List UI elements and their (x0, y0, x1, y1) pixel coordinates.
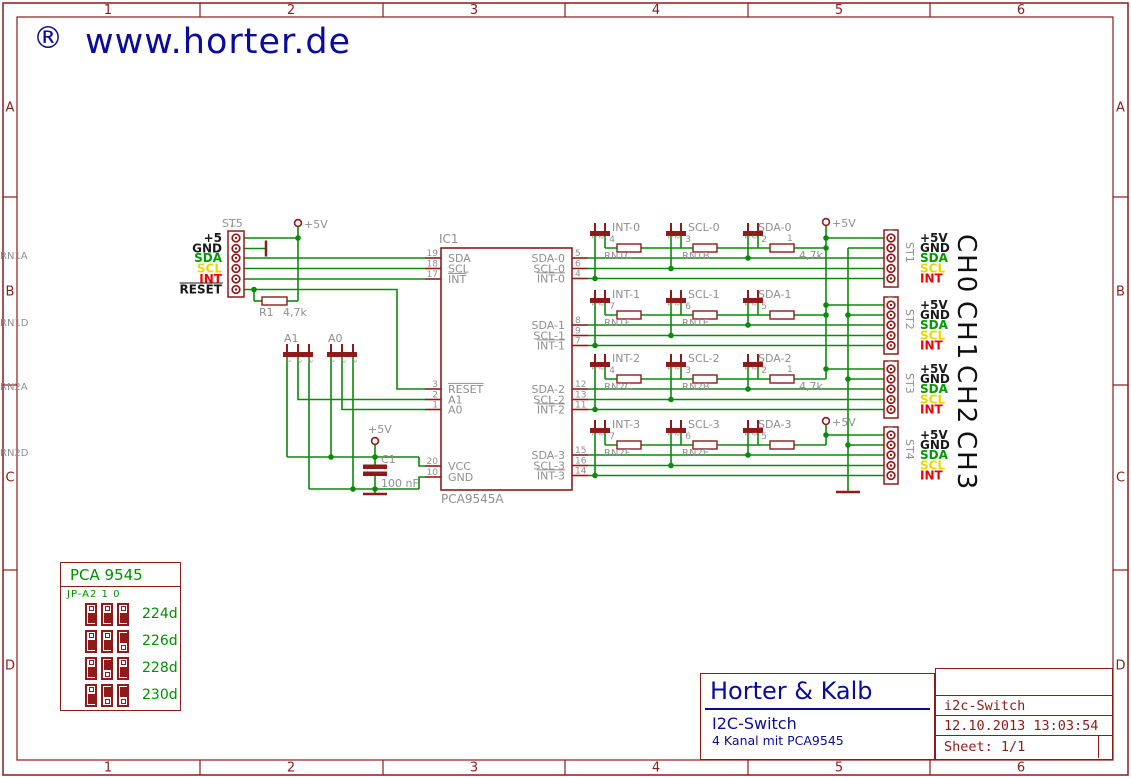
plus5v-label: +5V (368, 423, 392, 436)
grid-row-label: C (5, 471, 14, 486)
jumper-pin-number: 2 (750, 432, 758, 436)
jumper-block-up (117, 630, 129, 653)
st5-pin1-marker: 1 (229, 224, 237, 228)
jumper-open-pin (121, 645, 126, 650)
jumper-pin-number: 2 (597, 302, 605, 306)
rn-pin-number: 4 (609, 366, 615, 376)
ic-pin-number: 2 (432, 391, 438, 401)
title-block-company-box: Horter & Kalb I2C-Switch 4 Kanal mit PCA… (700, 673, 935, 760)
net-label: INT-2 (612, 352, 640, 365)
ic1-designator: IC1 (439, 232, 459, 246)
jumper-block-down (101, 630, 113, 653)
junction-dot (668, 463, 674, 469)
c1-plate (363, 472, 387, 477)
rn-pin-number: 2 (761, 235, 767, 245)
rn-pin-number: 4 (609, 235, 615, 245)
jumper-pin-number: 1 (743, 302, 751, 306)
rn-pin-number: 6 (685, 432, 691, 442)
ic-pin-number: 18 (427, 260, 439, 270)
jumper-open-pin (121, 699, 126, 704)
connector-pad-center (235, 278, 237, 280)
ic-pin-number: 4 (575, 270, 581, 280)
jumper-pin-number: 3 (306, 359, 314, 363)
jumper-pin-number: 1 (666, 366, 674, 370)
grid-column-label: 4 (652, 761, 660, 776)
address-value: 226d (142, 633, 178, 649)
net-label: SDA-0 (758, 221, 792, 234)
ic-pin-number: 8 (575, 316, 581, 326)
ic-pin-number: 14 (575, 467, 587, 477)
address-table-row: 226d (85, 629, 180, 653)
document-subtitle: 4 Kanal mit PCA9545 (701, 732, 934, 748)
rn-resistor-RN2D (770, 441, 794, 449)
st-designator: ST1 (903, 242, 916, 263)
title-block-empty-cell (936, 669, 1112, 696)
grid-row-label: D (5, 659, 15, 674)
rn-name: RN2A (0, 382, 28, 393)
grid-row-label: B (6, 285, 15, 300)
grid-column-label: 2 (287, 761, 295, 776)
jumper-open-pin (105, 699, 110, 704)
junction-dot (592, 343, 598, 349)
jumper-cap (88, 694, 95, 704)
net-label: INT-3 (612, 418, 640, 431)
channel-label-CH1: CH1 (951, 301, 981, 361)
connector-pad-center (890, 314, 892, 316)
rn-pin-number: 5 (761, 302, 767, 312)
connector-pad-center (235, 267, 237, 269)
connector-pad-center (890, 368, 892, 370)
rn-name: RN2C (604, 382, 632, 393)
address-table-rows: 224d226d228d230d (67, 602, 180, 707)
jumper-pictogram (85, 684, 129, 707)
address-table-row: 224d (85, 602, 180, 626)
r1-name: R1 (259, 306, 274, 319)
jumper-pin-number: 2 (750, 235, 758, 239)
ic-pin-label: INT-3 (537, 470, 565, 483)
jumper-block-down (117, 603, 129, 626)
junction-dot (328, 454, 334, 460)
junction-dot (823, 312, 829, 318)
rn-pin-number: 7 (609, 432, 615, 442)
rn-pin-number: 3 (685, 366, 691, 376)
rn-pin-number: 2 (761, 366, 767, 376)
jumper-block-down (85, 603, 97, 626)
jumper-cap (104, 660, 111, 670)
ic-pin-number: 20 (427, 457, 439, 467)
rn-pin-number: 1 (787, 234, 793, 244)
address-jumper-name: A1 (284, 332, 299, 345)
jumper-block-down (85, 684, 97, 707)
jumper-pin-number: 2 (673, 235, 681, 239)
jumper-block-down (101, 603, 113, 626)
address-jumper-A0 (327, 352, 357, 357)
plus5v-label: +5V (832, 416, 856, 429)
jumper-pictogram (85, 657, 129, 680)
jumper-cap (120, 633, 127, 643)
sheet-cell: Sheet: 1/1 (936, 736, 1112, 758)
st-pin1-marker: 1 (886, 295, 894, 299)
rn-name: RN1F (604, 318, 631, 329)
r1-value: 4,7k (283, 306, 307, 319)
grid-column-label: 4 (652, 3, 660, 18)
address-jumper-A1 (283, 352, 313, 357)
jumper-pin-number: 2 (673, 432, 681, 436)
grid-column-label: 5 (835, 761, 843, 776)
junction-dot (823, 302, 829, 308)
junction-dot (823, 432, 829, 438)
company-name: Horter & Kalb (701, 674, 934, 705)
ic-pin-label: INT-2 (537, 404, 565, 417)
connector-pad-center (235, 237, 237, 239)
jumper-open-pin (89, 606, 94, 611)
net-label: SDA-1 (758, 288, 792, 301)
jumper-block-down (85, 630, 97, 653)
c1-value: 100 nF (381, 477, 419, 490)
address-jumper-name: A0 (328, 332, 343, 345)
address-value: 224d (142, 606, 178, 622)
address-table-body: JP-A2 1 0 224d226d228d230d (61, 587, 180, 707)
ic-pin-label: GND (448, 471, 473, 484)
address-value: 230d (142, 687, 178, 703)
junction-dot (350, 486, 356, 492)
connector-pad-center (890, 247, 892, 249)
jumper-pictogram (85, 630, 129, 653)
grid-column-label: 6 (1017, 3, 1025, 18)
jumper-pin-number: 1 (666, 235, 674, 239)
connector-pad-center (235, 257, 237, 259)
rn-name: RN2E (682, 448, 709, 459)
jumper-open-pin (121, 660, 126, 665)
rn-pin-number: 6 (685, 302, 691, 312)
junction-dot (592, 407, 598, 413)
schematic-sheet: 112233445566AABBCCDDST51+5GNDSDASCLINTRE… (0, 0, 1131, 778)
net-label: SDA-2 (758, 352, 792, 365)
sheet-number: Sheet: 1/1 (944, 739, 1025, 755)
jumper-open-pin (105, 606, 110, 611)
connector-pad-center (890, 378, 892, 380)
grid-column-label: 2 (287, 3, 295, 18)
junction-dot (668, 397, 674, 403)
rn-name: RN1B (682, 251, 710, 262)
junction-dot (372, 454, 378, 460)
registered-trademark-icon: ® (33, 22, 63, 56)
address-table-row: 228d (85, 656, 180, 680)
channel-label-CH2: CH2 (951, 365, 981, 425)
ic-pin-number: 1 (432, 401, 438, 411)
rn-name: RN2B (682, 382, 710, 393)
ic-pin-number: 3 (432, 380, 438, 390)
ic-pin-number: 9 (575, 327, 581, 337)
jumper-cap (104, 613, 111, 623)
jumper-cap (104, 687, 111, 697)
jumper-block-down (85, 657, 97, 680)
connector-pad-center (890, 237, 892, 239)
net-label: SDA-3 (758, 418, 792, 431)
st-pin-label: INT (920, 403, 944, 417)
jumper-block-up (117, 684, 129, 707)
grid-column-label: 6 (1017, 761, 1025, 776)
rn-resistor-RN1A (770, 244, 794, 252)
grid-row-label: B (1116, 285, 1125, 300)
rn-name: RN2D (0, 448, 29, 459)
connector-pad-center (890, 434, 892, 436)
plus5v-symbol (372, 438, 379, 445)
jumper-cap (88, 613, 95, 623)
connector-pad-center (890, 474, 892, 476)
junction-dot (823, 245, 829, 251)
st-pin-label: INT (920, 469, 944, 483)
rn-resistor-RN2A (770, 375, 794, 383)
junction-dot (668, 266, 674, 272)
wire (419, 477, 425, 489)
wire (419, 457, 425, 466)
connector-pad-center (890, 304, 892, 306)
junction-dot (745, 452, 751, 458)
logo: ® www.horter.de (33, 22, 351, 62)
junction-dot (823, 235, 829, 241)
ic-pin-number: 10 (427, 468, 439, 478)
ic-pin-number: 6 (575, 260, 581, 270)
grid-row-label: C (1116, 471, 1125, 486)
plus5v-symbol (823, 418, 830, 425)
ic-pin-number: 11 (575, 401, 586, 411)
c1-name: C1 (381, 453, 396, 466)
junction-dot (592, 473, 598, 479)
jumper-pin-number: 2 (750, 366, 758, 370)
address-value: 228d (142, 660, 178, 676)
junction-dot (745, 386, 751, 392)
jumper-pin-number: 2 (597, 235, 605, 239)
connector-pad-center (890, 444, 892, 446)
jumper-pin-number: 1 (284, 359, 292, 363)
st-pin-label: INT (920, 339, 944, 353)
jumper-pin-number: 2 (673, 366, 681, 370)
rn-pin-number: 3 (685, 235, 691, 245)
rn-pin-number: 1 (787, 365, 793, 375)
connector-pad-center (235, 288, 237, 290)
jumper-pin-number: 2 (295, 359, 303, 363)
junction-dot (372, 486, 378, 492)
net-label: SCL-1 (688, 288, 720, 301)
junction-dot (668, 333, 674, 339)
jumper-cap (88, 640, 95, 650)
connector-pad-center (890, 464, 892, 466)
net-label: SCL-0 (688, 221, 720, 234)
jumper-pin-number: 2 (673, 302, 681, 306)
connector-pad-center (890, 277, 892, 279)
connector-pad-center (890, 257, 892, 259)
jumper-block-down (117, 657, 129, 680)
timestamp: 12.10.2013 13:03:54 (936, 716, 1112, 736)
jumper-cap (104, 640, 111, 650)
address-table-title: PCA 9545 (61, 563, 180, 587)
jumper-pin-number: 1 (743, 432, 751, 436)
ic1-value: PCA9545A (441, 492, 504, 506)
grid-column-label: 3 (470, 3, 478, 18)
jumper-open-pin (105, 633, 110, 638)
ic-pin-number: 13 (575, 391, 586, 401)
st-designator: ST3 (903, 373, 916, 394)
jumper-pin-number: 1 (743, 366, 751, 370)
jumper-cap (120, 667, 127, 677)
jumper-open-pin (105, 672, 110, 677)
junction-dot (823, 366, 829, 372)
r1-resistor (262, 297, 287, 305)
junction-dot (845, 312, 851, 318)
ic-pin-label: INT (448, 273, 466, 286)
ic-pin-number: 16 (575, 457, 587, 467)
jumper-pin-number: 1 (590, 235, 598, 239)
rn-value: 4,7k (799, 380, 823, 393)
rn-name: RN1D (0, 318, 29, 329)
jumper-pictogram (85, 603, 129, 626)
logo-text: www.horter.de (85, 22, 351, 62)
sheet-cell-divider (1098, 736, 1099, 758)
rn-name: RN1A (0, 251, 28, 262)
wire (298, 357, 425, 400)
st-pin1-marker: 1 (886, 425, 894, 429)
connector-pad-center (890, 388, 892, 390)
ic-pin-label: INT-1 (537, 340, 565, 353)
jumper-block-up (101, 684, 113, 707)
ic-pin-number: 12 (575, 380, 586, 390)
jumper-pin-number: 1 (743, 235, 751, 239)
jumper-block-up (101, 657, 113, 680)
grid-column-label: 3 (470, 761, 478, 776)
jumper-pin-number: 3 (350, 359, 358, 363)
connector-pad-center (890, 398, 892, 400)
ic-pin-number: 15 (575, 446, 586, 456)
jumper-pin-number: 2 (339, 359, 347, 363)
rn-resistor-RN1D (770, 311, 794, 319)
connector-pad-center (890, 324, 892, 326)
net-label: SCL-3 (688, 418, 720, 431)
net-label: INT-1 (612, 288, 640, 301)
rn-pin-number: 7 (609, 302, 615, 312)
rn-pin-number: 5 (761, 432, 767, 442)
grid-column-label: 5 (835, 3, 843, 18)
grid-column-label: 1 (104, 3, 112, 18)
file-name: i2c-Switch (936, 696, 1112, 716)
st-pin1-marker: 1 (886, 228, 894, 232)
grid-row-label: D (1115, 659, 1125, 674)
connector-pad-center (890, 267, 892, 269)
st-pin-label: INT (920, 272, 944, 286)
plus5v-label: +5V (304, 218, 328, 231)
jumper-pin-number: 1 (666, 432, 674, 436)
jumper-pin-number: 2 (750, 302, 758, 306)
rn-value: 4,7k (799, 249, 823, 262)
wire (342, 357, 425, 410)
jumper-pin-number: 1 (666, 302, 674, 306)
document-title: I2C-Switch (701, 710, 934, 732)
address-table-header: JP-A2 1 0 (67, 589, 180, 600)
connector-pad-center (890, 334, 892, 336)
ic-pin-number: 7 (575, 337, 581, 347)
jumper-open-pin (89, 687, 94, 692)
net-label: SCL-2 (688, 352, 720, 365)
jumper-pin-number: 1 (590, 366, 598, 370)
junction-dot (745, 255, 751, 261)
jumper-pin-number: 1 (590, 302, 598, 306)
ic-pin-number: 5 (575, 249, 581, 259)
plus5v-symbol (295, 220, 302, 227)
rn-name: RN1C (604, 251, 632, 262)
net-label: INT-0 (612, 221, 640, 234)
junction-dot (745, 322, 751, 328)
jumper-open-pin (89, 660, 94, 665)
jumper-open-pin (89, 633, 94, 638)
rn-name: RN2F (604, 448, 631, 459)
ic-pin-number: 17 (427, 270, 438, 280)
title-block-info-box: i2c-Switch 12.10.2013 13:03:54 Sheet: 1/… (935, 668, 1113, 760)
st5-pin-label: RESET (180, 283, 223, 297)
ic-pin-label: INT-0 (537, 273, 565, 286)
grid-row-label: A (6, 101, 15, 116)
jumper-cap (120, 687, 127, 697)
plus5v-symbol (823, 219, 830, 226)
connector-pad-center (890, 454, 892, 456)
grid-row-label: A (1116, 101, 1125, 116)
connector-pad-center (890, 344, 892, 346)
channel-label-CH3: CH3 (951, 431, 981, 491)
jumper-cap (120, 613, 127, 623)
jumper-open-pin (121, 606, 126, 611)
junction-dot (845, 376, 851, 382)
ic-pin-number: 19 (427, 249, 439, 259)
ic-pin-label: A0 (448, 404, 463, 417)
connector-pad-center (890, 408, 892, 410)
st-designator: ST2 (903, 309, 916, 330)
junction-dot (251, 287, 257, 293)
plus5v-label: +5V (832, 217, 856, 230)
address-table-row: 230d (85, 683, 180, 707)
junction-dot (845, 442, 851, 448)
jumper-cap (88, 667, 95, 677)
jumper-pin-number: 2 (597, 432, 605, 436)
address-table: PCA 9545 JP-A2 1 0 224d226d228d230d (60, 562, 181, 711)
connector-pad-center (235, 247, 237, 249)
jumper-pin-number: 2 (597, 366, 605, 370)
jumper-pin-number: 1 (590, 432, 598, 436)
grid-column-label: 1 (104, 761, 112, 776)
jumper-pin-number: 1 (328, 359, 336, 363)
st-designator: ST4 (903, 439, 916, 460)
st-pin1-marker: 1 (886, 359, 894, 363)
rn-name: RN1E (682, 318, 709, 329)
channel-label-CH0: CH0 (951, 234, 981, 294)
junction-dot (592, 276, 598, 282)
